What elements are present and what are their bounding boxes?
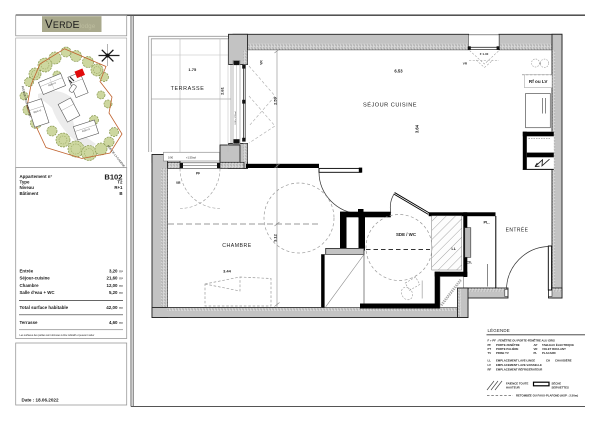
svg-text:3.12: 3.12 bbox=[272, 233, 277, 242]
svg-text:ENTRÉE: ENTRÉE bbox=[506, 227, 529, 234]
svg-text:EMPLACEMENT LAVE-LINGE: EMPLACEMENT LAVE-LINGE bbox=[496, 359, 535, 363]
svg-text:TV: TV bbox=[488, 351, 492, 355]
svg-text:CH: CH bbox=[546, 359, 550, 363]
svg-text:LL: LL bbox=[488, 359, 492, 363]
svg-text:SDE / WC: SDE / WC bbox=[396, 232, 417, 237]
svg-text:Total surface habitable: Total surface habitable bbox=[20, 305, 69, 310]
svg-text:0.90 +1.55sol: 0.90 +1.55sol bbox=[235, 111, 237, 125]
svg-text:T2: T2 bbox=[117, 180, 123, 185]
svg-text:F + PF : FENÊTRE OU PORTE-FEN: F + PF : FENÊTRE OU PORTE-FENÊTRE ALU GR… bbox=[488, 338, 556, 343]
svg-text:Niveau: Niveau bbox=[20, 185, 35, 190]
svg-text:VR: VR bbox=[259, 60, 263, 65]
svg-text:RF: RF bbox=[488, 367, 492, 371]
svg-text:SERVIETTES: SERVIETTES bbox=[552, 386, 569, 390]
svg-text:HAUTEUR: HAUTEUR bbox=[506, 386, 520, 390]
svg-text:Chambre: Chambre bbox=[20, 283, 40, 288]
svg-text:TERRASSE: TERRASSE bbox=[171, 86, 205, 92]
svg-text:PL.: PL. bbox=[484, 220, 490, 225]
svg-text:3.44: 3.44 bbox=[223, 269, 232, 274]
svg-text:CHAMBRE: CHAMBRE bbox=[222, 243, 251, 249]
svg-text:Type: Type bbox=[20, 180, 30, 185]
svg-text:SÉJOUR CUISINE: SÉJOUR CUISINE bbox=[363, 102, 417, 109]
svg-text:VR: VR bbox=[176, 181, 181, 185]
svg-text:2.59: 2.59 bbox=[272, 96, 277, 105]
svg-text:Appartement n°: Appartement n° bbox=[20, 174, 53, 179]
svg-text:Salle d'eau + WC: Salle d'eau + WC bbox=[20, 290, 56, 295]
svg-text:R+1: R+1 bbox=[114, 185, 123, 190]
svg-text:Rf ou LV: Rf ou LV bbox=[529, 79, 548, 84]
svg-text:Date : 18.06.2022: Date : 18.06.2022 bbox=[22, 398, 59, 403]
svg-text:42,00: 42,00 bbox=[106, 305, 118, 310]
svg-text:B: B bbox=[119, 191, 122, 196]
svg-text:1.75: 1.75 bbox=[188, 67, 197, 72]
svg-text:Entrée: Entrée bbox=[20, 269, 34, 274]
svg-text:0.90: 0.90 bbox=[168, 155, 174, 159]
svg-text:Terrasse: Terrasse bbox=[20, 320, 39, 325]
svg-text:4,60: 4,60 bbox=[109, 320, 118, 325]
svg-text:PL: PL bbox=[534, 351, 538, 355]
svg-text:5,20: 5,20 bbox=[109, 290, 118, 295]
svg-text:LÉGENDE: LÉGENDE bbox=[488, 328, 510, 333]
svg-text:Bâtiment: Bâtiment bbox=[20, 191, 39, 196]
svg-text:PF: PF bbox=[196, 172, 200, 176]
svg-text:2.61: 2.61 bbox=[220, 86, 225, 95]
svg-text:+1.55sol: +1.55sol bbox=[186, 155, 196, 159]
svg-text:6.53: 6.53 bbox=[394, 69, 403, 74]
svg-text:PLACARD: PLACARD bbox=[542, 351, 556, 355]
svg-text:Ch.: Ch. bbox=[467, 261, 473, 265]
svg-text:VR: VR bbox=[463, 62, 468, 66]
svg-text:3,20: 3,20 bbox=[109, 269, 118, 274]
svg-text:3.64: 3.64 bbox=[415, 124, 420, 133]
svg-text:CHAUDIÈRE: CHAUDIÈRE bbox=[555, 358, 572, 363]
svg-text:12,00: 12,00 bbox=[107, 283, 119, 288]
svg-text:Les surfaces des parties sont: Les surfaces des parties sont données à … bbox=[20, 334, 95, 337]
svg-text:EMPLACEMENT RÉFRIGÉRATEUR: EMPLACEMENT RÉFRIGÉRATEUR bbox=[496, 366, 542, 371]
svg-text:21,60: 21,60 bbox=[107, 276, 119, 281]
svg-text:Séjour-cuisine: Séjour-cuisine bbox=[20, 276, 51, 281]
svg-text:PRISE TV: PRISE TV bbox=[496, 351, 509, 355]
svg-text:RETOMBÉE OU FAUX-PLAFOND (HSP: RETOMBÉE OU FAUX-PLAFOND (HSP : 2.50m) bbox=[516, 393, 578, 398]
svg-text:F 1.40: F 1.40 bbox=[480, 52, 489, 56]
